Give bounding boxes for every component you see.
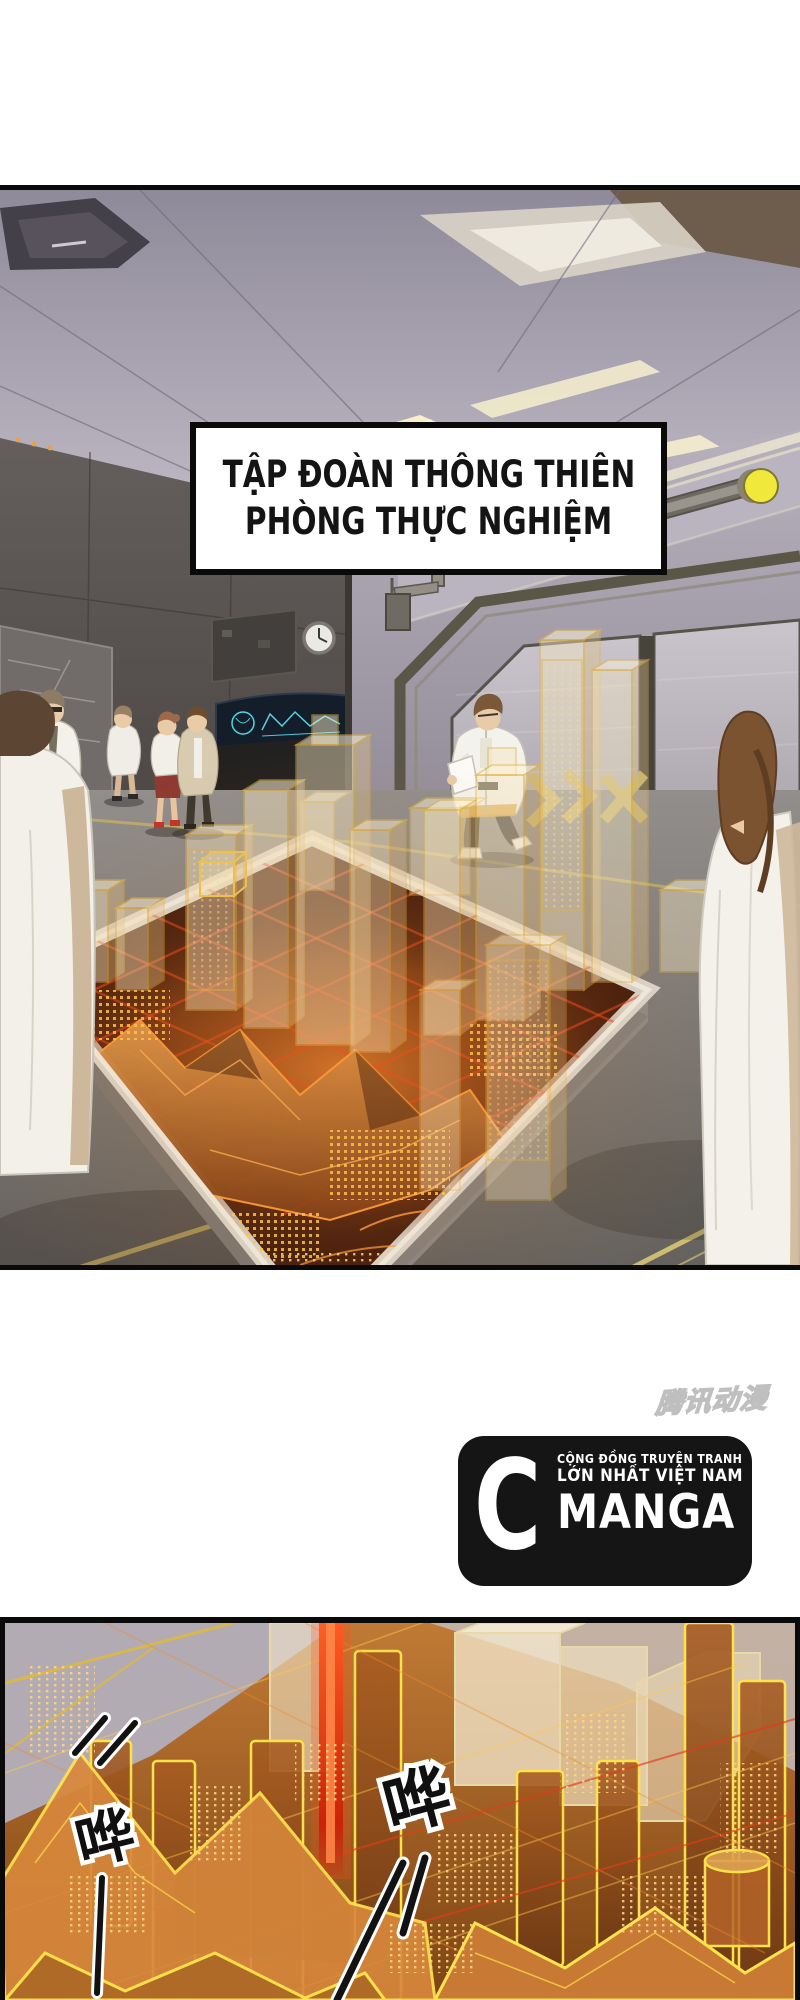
comic-page: TẬP ĐOÀN THÔNG THIÊN PHÒNG THỰC NGHIỆM 腾… bbox=[0, 0, 800, 2000]
cmanga-logo: C CỘNG ĐỒNG TRUYỆN TRANH LỚN NHẤT VIỆT N… bbox=[460, 1438, 750, 1584]
logo-tagline-1: CỘNG ĐỒNG TRUYỆN TRANH bbox=[557, 1452, 743, 1466]
lab-scene-art bbox=[0, 190, 800, 1270]
logo-letter-c: C bbox=[474, 1438, 541, 1574]
status-light-icon bbox=[737, 469, 778, 503]
logo-brand: MANGA bbox=[557, 1487, 735, 1539]
panel-2: 哗 哗 bbox=[0, 1617, 800, 2000]
logo-tagline-2: LỚN NHẤT VIỆT NAM bbox=[557, 1466, 743, 1485]
wall-clock-icon bbox=[304, 623, 334, 653]
panel-1: TẬP ĐOÀN THÔNG THIÊN PHÒNG THỰC NGHIỆM bbox=[0, 185, 800, 1270]
holo-city-art: 哗 哗 bbox=[5, 1623, 795, 2000]
holo-cylinder bbox=[705, 1850, 769, 1946]
caption-line-2: PHÒNG THỰC NGHIỆM bbox=[245, 499, 612, 545]
publisher-watermark: 腾讯动漫 bbox=[654, 1374, 800, 1421]
notice-panel bbox=[212, 610, 296, 682]
caption-line-1: TẬP ĐOÀN THÔNG THIÊN bbox=[222, 452, 635, 498]
caption-box: TẬP ĐOÀN THÔNG THIÊN PHÒNG THỰC NGHIỆM bbox=[190, 422, 667, 575]
